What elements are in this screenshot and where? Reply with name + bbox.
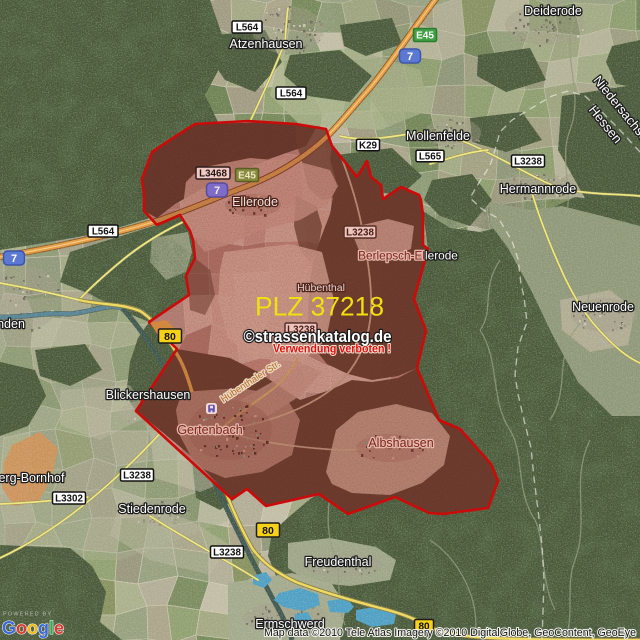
- svg-text:Atzenhausen: Atzenhausen: [230, 37, 303, 51]
- svg-text:nden: nden: [0, 317, 25, 331]
- svg-text:Ellerode: Ellerode: [232, 195, 278, 209]
- svg-text:L564: L564: [236, 23, 259, 34]
- svg-text:Google: Google: [2, 618, 64, 638]
- svg-text:Verwendung verboten !: Verwendung verboten !: [273, 342, 391, 356]
- svg-text:80: 80: [164, 331, 176, 343]
- svg-text:L3302: L3302: [55, 494, 83, 505]
- svg-text:Neuenrode: Neuenrode: [572, 300, 634, 314]
- svg-text:L564: L564: [92, 227, 115, 238]
- svg-text:L3238: L3238: [123, 471, 151, 482]
- svg-text:7: 7: [214, 185, 220, 197]
- svg-text:K29: K29: [359, 141, 378, 152]
- svg-text:Albshausen: Albshausen: [368, 436, 433, 450]
- svg-text:Freudenthal: Freudenthal: [305, 555, 372, 569]
- svg-text:Blickershausen: Blickershausen: [106, 388, 191, 402]
- svg-text:7: 7: [407, 51, 413, 63]
- svg-text:L564: L564: [280, 89, 303, 100]
- svg-text:Hermannrode: Hermannrode: [500, 182, 576, 196]
- svg-text:E45: E45: [238, 171, 256, 182]
- svg-text:L3468: L3468: [199, 169, 227, 180]
- svg-text:L565: L565: [419, 152, 442, 163]
- svg-text:Mollenfelde: Mollenfelde: [406, 129, 470, 143]
- svg-text:Deiderode: Deiderode: [524, 4, 582, 18]
- svg-text:L3238: L3238: [346, 228, 374, 239]
- svg-text:80: 80: [262, 525, 274, 537]
- svg-text:Berlepsch-Ellerode: Berlepsch-Ellerode: [358, 249, 458, 263]
- svg-text:PLZ 37218: PLZ 37218: [255, 292, 384, 322]
- svg-text:L3238: L3238: [213, 548, 241, 559]
- svg-text:L3238: L3238: [514, 157, 542, 168]
- svg-text:7: 7: [11, 253, 17, 265]
- svg-text:berg-Bornhof: berg-Bornhof: [0, 471, 65, 485]
- svg-text:Stiedenrode: Stiedenrode: [118, 502, 185, 516]
- svg-text:Map data ©2010 Tele Atlas Ima: Map data ©2010 Tele Atlas Imagery ©2010 …: [264, 627, 636, 639]
- svg-text:Gertenbach: Gertenbach: [177, 423, 242, 437]
- svg-text:E45: E45: [416, 31, 434, 42]
- svg-text:POWERED BY: POWERED BY: [3, 612, 52, 618]
